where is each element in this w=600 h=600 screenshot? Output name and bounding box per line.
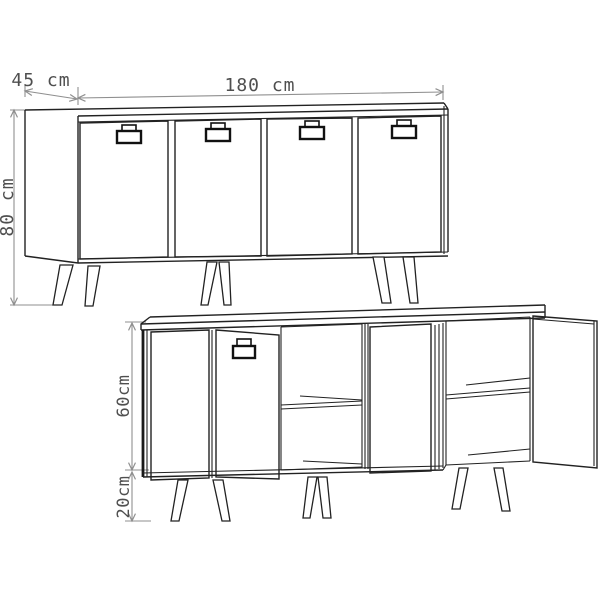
open-cabinet-legs [171, 468, 510, 521]
top-panel-front-bottom-edge [141, 318, 545, 330]
shelf-back-edge [300, 396, 362, 400]
cabinet-leg [452, 468, 468, 509]
cabinet-leg [219, 262, 231, 305]
cabinet-leg [303, 477, 317, 518]
open-view-dimensions: 60cm 20cm [114, 322, 151, 521]
open-door-panel [533, 316, 597, 468]
cabinet-top-panel-bottom [78, 115, 448, 122]
cabinet-leg [171, 480, 188, 521]
cabinet-right-top-corner [444, 103, 448, 109]
shelf-back-edge [466, 378, 530, 385]
cabinet-leg [494, 468, 510, 511]
bottom-back-edge [468, 449, 530, 455]
width-dimension-label: 180 cm [224, 75, 295, 96]
depth-dimension-line [25, 91, 77, 99]
cabinet-top-back-edge [25, 103, 444, 110]
top-panel-front-top-edge [141, 312, 545, 324]
front-cabinet-legs [53, 257, 418, 306]
door-3-handle-icon [300, 121, 324, 139]
cabinet-leg [373, 257, 391, 303]
cabinet-leg [403, 257, 418, 303]
cabinet-leg [318, 477, 331, 518]
open-cabinet-top-panel [141, 305, 545, 330]
door-1-handle-icon [117, 125, 141, 143]
front-cabinet-doors [80, 116, 441, 259]
open-door-2-handle-icon [233, 339, 255, 358]
door-2-handle-icon [206, 123, 230, 141]
shelf-bottom-edge [446, 392, 530, 399]
shelf-front-edge [281, 401, 362, 405]
height-dimension-label: 80 cm [0, 177, 18, 236]
furniture-dimension-drawing: 45 cm 180 cm 80 cm [0, 0, 600, 600]
cabinet-leg [85, 266, 100, 306]
cabinet-leg [213, 480, 230, 521]
open-view-door-3 [370, 324, 431, 473]
open-view-door-1 [151, 330, 209, 480]
open-view: 60cm 20cm [114, 305, 597, 521]
cabinet-leg [201, 262, 217, 305]
cabinet-leg [53, 265, 73, 305]
cabinet-bottom-outer-edge [78, 256, 448, 263]
bottom-back-edge [303, 461, 362, 464]
cabinet-top-front-edge [78, 109, 448, 116]
open-compartment-right [446, 317, 530, 465]
door-4-handle-icon [392, 120, 416, 138]
compartment-bottom-edge [446, 461, 530, 465]
top-panel-back-edge [150, 305, 545, 317]
bottom-front-edge [143, 470, 443, 477]
open-swung-door [533, 316, 597, 468]
drawing-canvas: 45 cm 180 cm 80 cm [0, 0, 600, 600]
body-height-dimension-label: 60cm [114, 375, 134, 418]
depth-dimension-label: 45 cm [11, 70, 70, 91]
shelf-front-edge [446, 388, 530, 395]
front-view: 45 cm 180 cm 80 cm [0, 70, 448, 306]
front-cabinet-body [25, 103, 448, 263]
leg-height-dimension-label: 20cm [114, 476, 134, 519]
open-compartment-left [281, 324, 362, 470]
cabinet-left-bottom-edge [25, 256, 78, 263]
shelf-bottom-edge [281, 405, 362, 409]
open-cabinet-body [143, 316, 597, 480]
